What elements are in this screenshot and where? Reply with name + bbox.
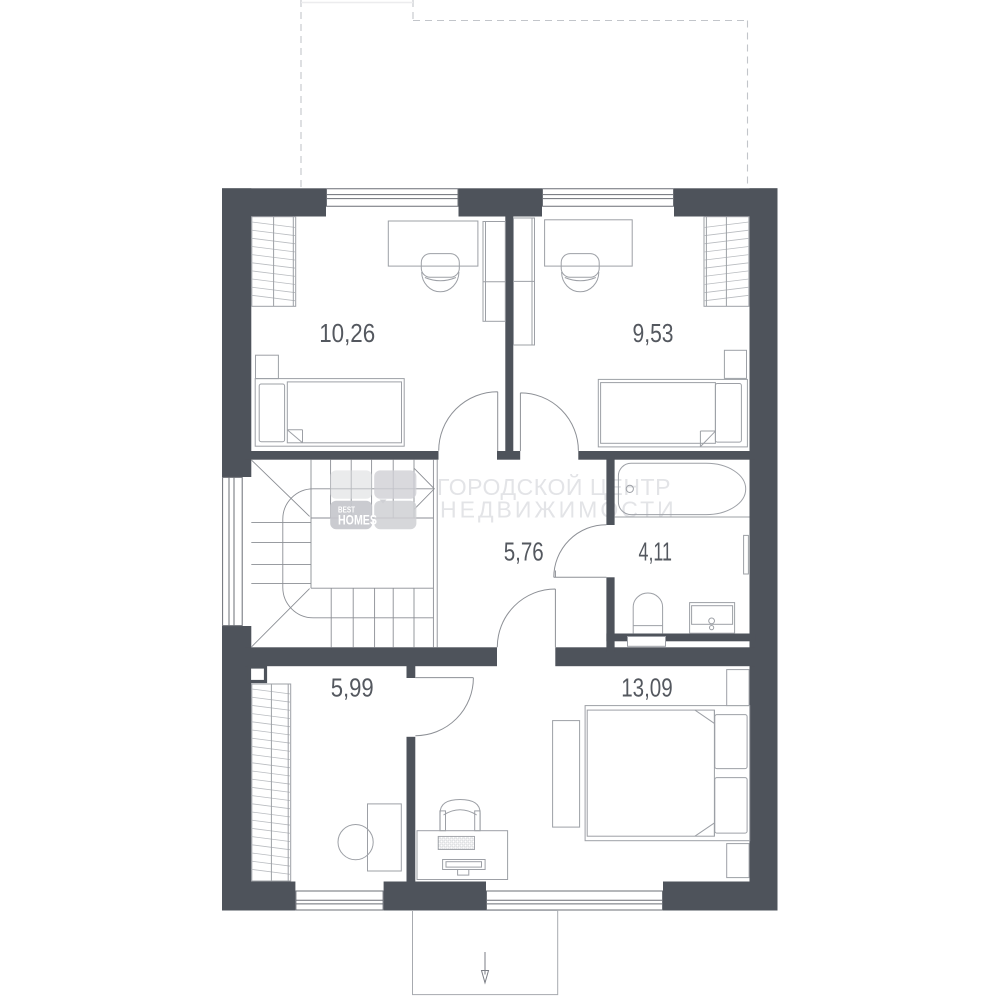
svg-text:10,26: 10,26 (319, 318, 375, 348)
svg-text:13,09: 13,09 (621, 673, 673, 703)
svg-text:5,76: 5,76 (504, 537, 544, 567)
svg-text:НЕДВИЖИМОСТИ: НЕДВИЖИМОСТИ (440, 496, 677, 522)
svg-text:HOMES: HOMES (338, 513, 377, 528)
svg-text:9,53: 9,53 (633, 318, 674, 348)
svg-text:5,99: 5,99 (331, 673, 374, 703)
svg-text:4,11: 4,11 (639, 537, 673, 567)
